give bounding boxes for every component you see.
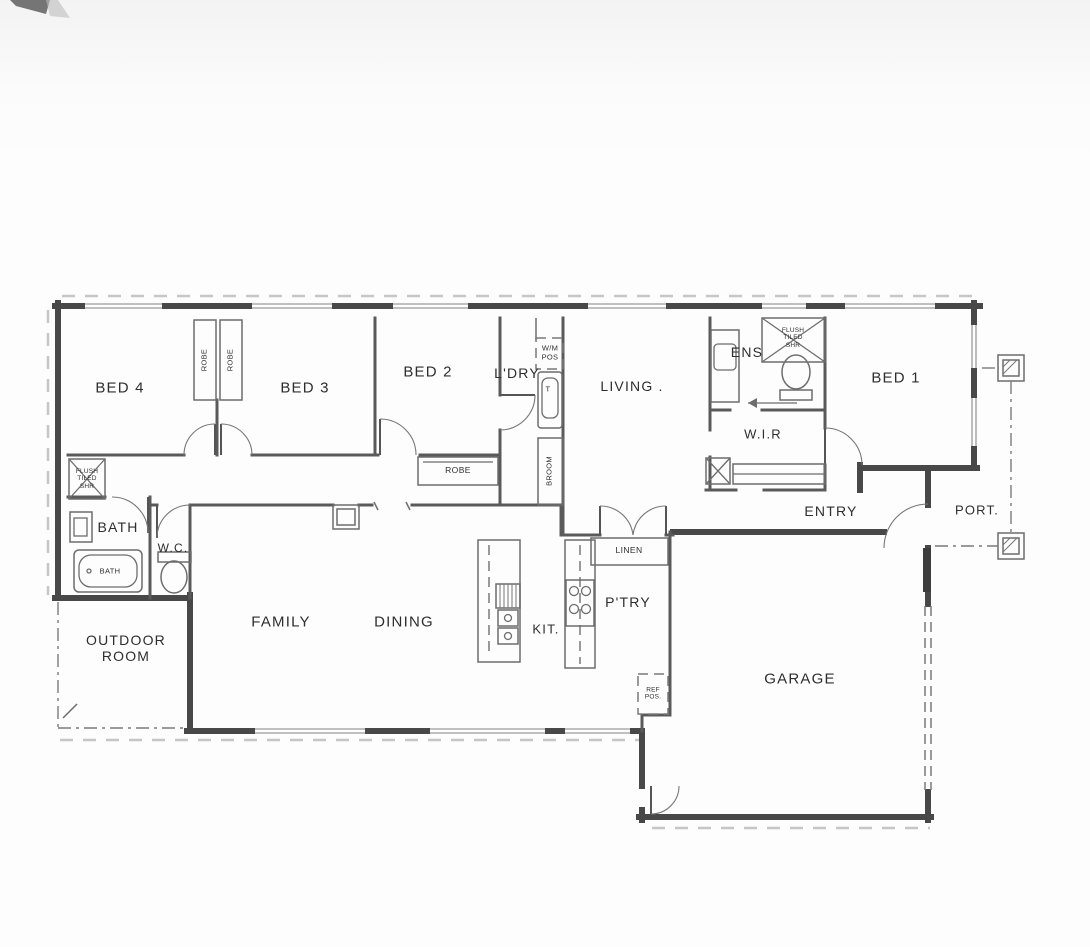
outdoor-room-edges [58,602,188,728]
room-label-kit: KIT. [532,623,559,638]
fixture-label-wm-pos: W/M POS [542,344,559,361]
fixture-label-trough: T [546,386,551,395]
portico-columns [935,355,1024,559]
fixture-label-shower-bath: FLUSH TILED SHR [76,468,98,490]
garage-panel-door [925,606,931,790]
fixture-label-bath-tub: BATH [100,568,121,577]
room-label-port: PORT. [955,504,999,519]
fixture-label-robe-right: ROBE [227,349,236,371]
doors [112,395,931,814]
fixture-label-shower-ens: FLUSH TILED SHR [782,327,804,349]
fixture-label-ref-pos: REF POS. [645,687,661,702]
fixture-label-broom: BROOM [546,456,555,486]
room-label-bed2: BED 2 [403,363,452,380]
ensuite-fixtures [711,318,825,408]
scan-corner-artifact [10,0,70,18]
room-label-wc: W.C. [158,542,189,556]
room-label-ptry: P'TRY [605,594,651,610]
fixture-label-linen: LINEN [615,546,642,556]
floor-plan-page: BED 4 BED 3 BED 2 L'DRY LIVING . ENS BED… [0,0,1090,947]
room-label-wir: W.I.R [744,428,782,443]
room-label-family: FAMILY [251,613,310,630]
room-label-dining: DINING [374,613,434,630]
kitchen-fixtures [478,538,668,714]
fixture-label-robe-left: ROBE [201,349,210,371]
room-label-bed3: BED 3 [280,379,329,396]
room-label-entry: ENTRY [804,503,857,519]
wir-fixtures [706,458,825,484]
room-label-bath: BATH [97,519,138,535]
room-label-bed4: BED 4 [95,379,144,396]
room-label-bed1: BED 1 [871,369,920,386]
room-label-ens: ENS [731,344,763,360]
room-label-garage: GARAGE [764,670,835,687]
room-label-outdoor: OUTDOOR ROOM [86,632,166,664]
room-label-living: LIVING . [600,378,663,394]
fixture-label-robe-bed2: ROBE [445,466,471,476]
robe-cupboards [194,320,498,485]
room-label-ldry: L'DRY [494,365,540,381]
